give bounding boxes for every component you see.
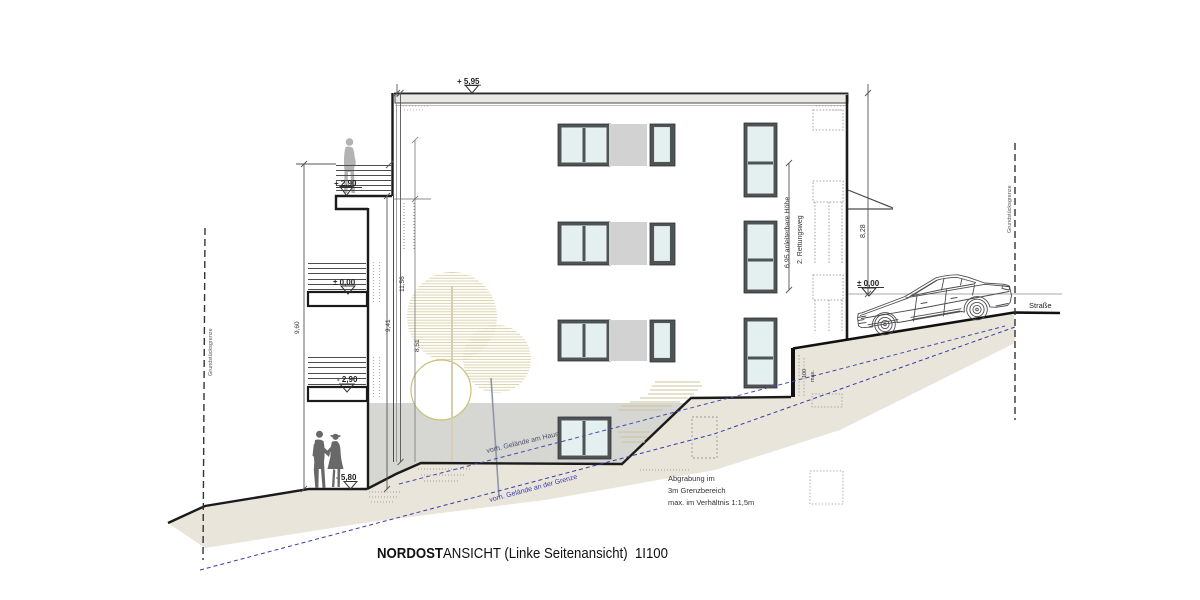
svg-text:Grundstücksgrenze: Grundstücksgrenze xyxy=(208,328,214,376)
svg-text:8,28: 8,28 xyxy=(860,224,867,238)
svg-text:8,51: 8,51 xyxy=(414,339,421,352)
svg-text:+ 5,95: + 5,95 xyxy=(457,77,480,86)
svg-text:2. Rettungsweg: 2. Rettungsweg xyxy=(797,215,804,264)
svg-text:± 0,00: ± 0,00 xyxy=(857,279,880,288)
svg-text:6,95 anleiterbare Höhe: 6,95 anleiterbare Höhe xyxy=(785,197,792,268)
svg-text:max. im Verhältnis 1:1,5m: max. im Verhältnis 1:1,5m xyxy=(668,498,754,507)
svg-text:Abgrabung im: Abgrabung im xyxy=(668,474,715,483)
svg-text:11,56: 11,56 xyxy=(399,276,406,292)
svg-text:9,41: 9,41 xyxy=(385,319,392,332)
svg-text:- 2,90: - 2,90 xyxy=(337,375,358,384)
svg-text:max.: max. xyxy=(810,370,816,382)
svg-text:3m Grenzbereich: 3m Grenzbereich xyxy=(668,486,726,495)
svg-text:Straße: Straße xyxy=(1029,301,1052,310)
svg-text:9,60: 9,60 xyxy=(294,321,301,334)
svg-text:Grundstücksgrenze: Grundstücksgrenze xyxy=(1007,185,1013,233)
svg-text:NORDOSTANSICHT (Linke Seitenan: NORDOSTANSICHT (Linke Seitenansicht) 1I1… xyxy=(377,545,668,562)
svg-text:100: 100 xyxy=(802,369,808,378)
